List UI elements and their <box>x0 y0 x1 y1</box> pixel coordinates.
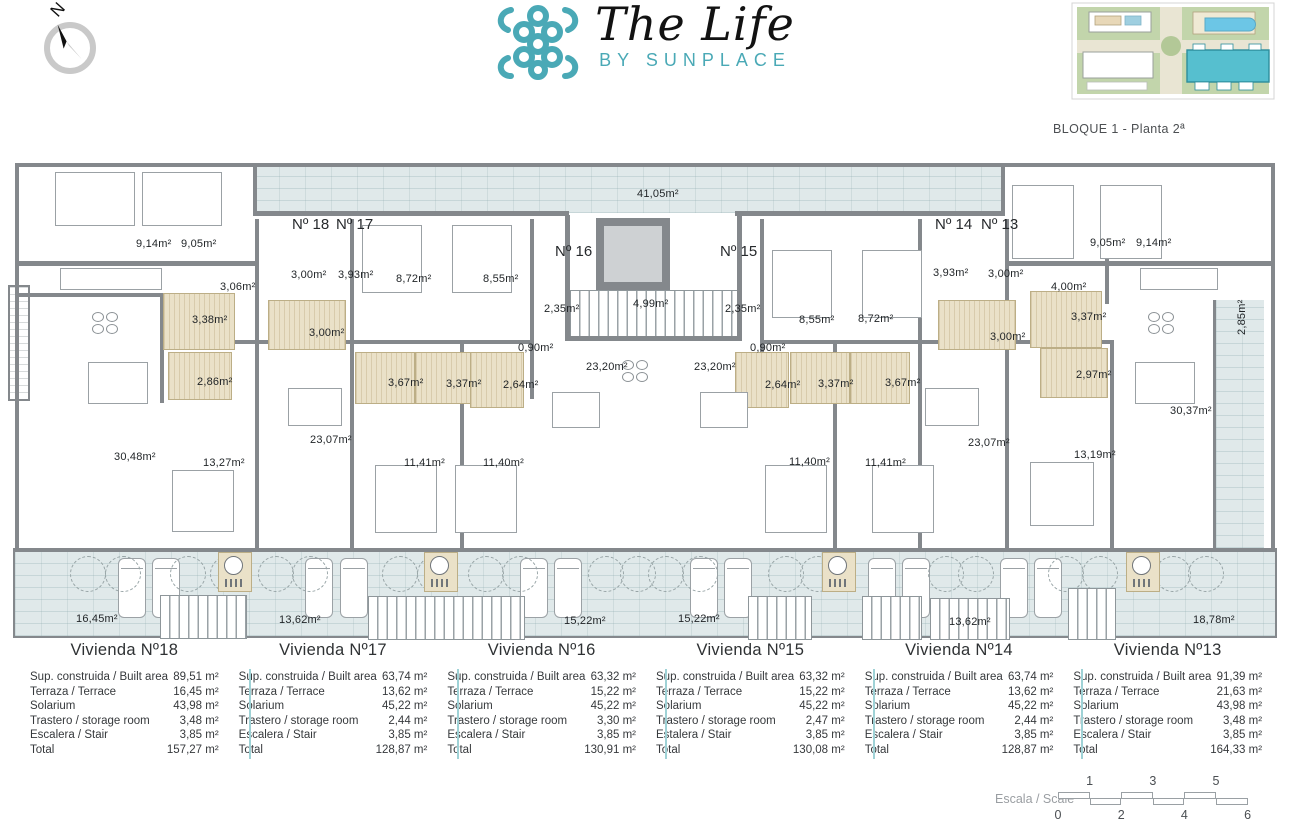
right-balcony <box>1216 300 1264 548</box>
spec-label: Sup. construida / Built area <box>1073 670 1211 685</box>
spec-row: Sup. construida / Built area63,74 m² <box>239 670 428 685</box>
spec-label: Terraza / Terrace <box>656 685 742 700</box>
table-divider <box>249 669 251 759</box>
spec-rows: Sup. construida / Built area91,39 m²Terr… <box>1073 670 1262 758</box>
spec-row: Terraza / Terrace13,62 m² <box>865 685 1054 700</box>
furniture-symbol <box>765 465 827 533</box>
spec-value: 3,48 m² <box>180 714 219 729</box>
spec-label: Solarium <box>656 699 701 714</box>
table-divider <box>665 669 667 759</box>
spec-value: 45,22 m² <box>591 699 636 714</box>
terrace-circle-symbol <box>648 556 684 592</box>
spec-label: Solarium <box>865 699 910 714</box>
spec-label: Escalera / Stair <box>447 728 525 743</box>
terrace-circle-symbol <box>1082 556 1118 592</box>
spec-label: Total <box>30 743 54 758</box>
spec-label: Estalera / Stair <box>656 728 731 743</box>
spec-row: Total130,08 m² <box>656 743 845 758</box>
spec-label: Total <box>865 743 889 758</box>
terrace-circle-symbol <box>105 556 141 592</box>
furniture-symbol <box>375 465 437 533</box>
terrace-circle-symbol <box>70 556 106 592</box>
spec-row: Solarium45,22 m² <box>656 699 845 714</box>
wall <box>255 219 259 548</box>
floorplan-sheet: N The Life BY SUNPLACE <box>0 0 1290 840</box>
spec-label: Escalera / Stair <box>865 728 943 743</box>
spec-value: 43,98 m² <box>1217 699 1262 714</box>
furniture-symbol <box>700 392 748 428</box>
spec-row: Total128,87 m² <box>865 743 1054 758</box>
scale-segment <box>1121 792 1153 799</box>
terrace-circle-symbol <box>588 556 624 592</box>
terrace-circle-symbol <box>502 556 538 592</box>
wall <box>253 166 257 216</box>
wall <box>1005 261 1275 266</box>
siteplan-thumbnail <box>1065 0 1285 106</box>
terrace-staircase <box>1068 588 1116 640</box>
furniture-symbol <box>455 465 517 533</box>
spec-row: Escalera / Stair3,85 m² <box>1073 728 1262 743</box>
scale-tick: 1 <box>1086 774 1093 788</box>
block-floor-caption: BLOQUE 1 - Planta 2ª <box>1053 122 1185 136</box>
spec-value: 2,44 m² <box>1014 714 1053 729</box>
spec-rows: Sup. construida / Built area63,74 m²Terr… <box>239 670 428 758</box>
spec-row: Sup. construida / Built area63,32 m² <box>656 670 845 685</box>
spec-row: Solarium45,22 m² <box>865 699 1054 714</box>
spec-row: Solarium45,22 m² <box>447 699 636 714</box>
scale-tick: 4 <box>1181 808 1188 822</box>
spec-rows: Sup. construida / Built area63,74 m²Terr… <box>865 670 1054 758</box>
spec-label: Sup. construida / Built area <box>447 670 585 685</box>
spec-value: 3,30 m² <box>597 714 636 729</box>
spec-row: Sup. construida / Built area63,32 m² <box>447 670 636 685</box>
terrace-circle-symbol <box>292 556 328 592</box>
apartment-table: Vivienda Nº18Sup. construida / Built are… <box>20 641 229 763</box>
spec-row: Solarium43,98 m² <box>30 699 219 714</box>
spec-row: Sup. construida / Built area89,51 m² <box>30 670 219 685</box>
spec-row: Terraza / Terrace15,22 m² <box>656 685 845 700</box>
terrace-circle-symbol <box>1048 556 1084 592</box>
spec-row: Escalera / Stair3,85 m² <box>447 728 636 743</box>
scale-segment <box>1184 792 1216 799</box>
terrace-circle-symbol <box>1188 556 1224 592</box>
spec-row: Solarium43,98 m² <box>1073 699 1262 714</box>
furniture-symbol <box>772 250 832 318</box>
table-divider <box>1081 669 1083 759</box>
spec-value: 89,51 m² <box>173 670 218 685</box>
spec-value: 2,47 m² <box>806 714 845 729</box>
furniture-symbol <box>60 268 162 290</box>
wall <box>1001 166 1005 216</box>
spec-row: Terraza / Terrace21,63 m² <box>1073 685 1262 700</box>
scale-tick: 0 <box>1055 808 1062 822</box>
apartment-table: Vivienda Nº16Sup. construida / Built are… <box>437 641 646 763</box>
apartment-table: Vivienda Nº13Sup. construida / Built are… <box>1063 641 1272 763</box>
bathroom-area <box>268 300 346 350</box>
spec-label: Terraza / Terrace <box>30 685 116 700</box>
spec-label: Trastero / storage room <box>865 714 985 729</box>
spec-row: Escalera / Stair3,85 m² <box>865 728 1054 743</box>
spec-row: Terraza / Terrace13,62 m² <box>239 685 428 700</box>
spec-label: Solarium <box>30 699 75 714</box>
spec-value: 16,45 m² <box>173 685 218 700</box>
furniture-symbol <box>172 470 234 532</box>
scale-segment <box>1058 792 1090 799</box>
spec-value: 91,39 m² <box>1217 670 1262 685</box>
spec-value: 63,32 m² <box>591 670 636 685</box>
sun-lounger <box>554 558 582 618</box>
logo-ornament-icon <box>495 2 581 82</box>
spec-label: Terraza / Terrace <box>865 685 951 700</box>
spec-label: Sup. construida / Built area <box>656 670 794 685</box>
spec-row: Trastero / storage room3,48 m² <box>30 714 219 729</box>
spec-value: 15,22 m² <box>799 685 844 700</box>
brand-subtitle: BY SUNPLACE <box>599 50 791 71</box>
scale-segment <box>1216 798 1248 805</box>
furniture-symbol <box>142 172 222 226</box>
spec-row: Trastero / storage room3,30 m² <box>447 714 636 729</box>
apartment-table: Vivienda Nº14Sup. construida / Built are… <box>855 641 1064 763</box>
spec-row: Escalera / Stair3,85 m² <box>30 728 219 743</box>
wall <box>15 261 259 266</box>
terrace-staircase <box>748 596 812 640</box>
spec-row: Escalera / Stair3,85 m² <box>239 728 428 743</box>
apartment-title: Vivienda Nº14 <box>865 641 1054 660</box>
spec-label: Sup. construida / Built area <box>30 670 168 685</box>
apartment-title: Vivienda Nº13 <box>1073 641 1262 660</box>
spec-label: Solarium <box>239 699 284 714</box>
spec-value: 3,85 m² <box>806 728 845 743</box>
spec-rows: Sup. construida / Built area63,32 m²Terr… <box>447 670 636 758</box>
terrace-circle-symbol <box>1155 556 1191 592</box>
spec-value: 128,87 m² <box>376 743 428 758</box>
spec-value: 130,08 m² <box>793 743 845 758</box>
spec-value: 63,74 m² <box>1008 670 1053 685</box>
apartment-spec-tables: Vivienda Nº18Sup. construida / Built are… <box>20 641 1272 763</box>
spec-row: Sup. construida / Built area63,74 m² <box>865 670 1054 685</box>
terrace-circle-symbol <box>382 556 418 592</box>
terrace-circle-symbol <box>468 556 504 592</box>
wall <box>1275 548 1277 638</box>
spec-value: 13,62 m² <box>1008 685 1053 700</box>
spec-value: 63,74 m² <box>382 670 427 685</box>
spec-value: 3,85 m² <box>1014 728 1053 743</box>
spec-label: Total <box>656 743 680 758</box>
spec-row: Solarium45,22 m² <box>239 699 428 714</box>
furniture-symbol <box>1135 362 1195 404</box>
furniture-symbol <box>55 172 135 226</box>
spec-value: 2,44 m² <box>388 714 427 729</box>
stove-icon <box>92 312 118 334</box>
spec-value: 45,22 m² <box>799 699 844 714</box>
spec-label: Terraza / Terrace <box>1073 685 1159 700</box>
apartment-title: Vivienda Nº17 <box>239 641 428 660</box>
wall <box>1271 163 1275 552</box>
spec-row: Total130,91 m² <box>447 743 636 758</box>
spec-label: Solarium <box>447 699 492 714</box>
spec-label: Terraza / Terrace <box>447 685 533 700</box>
wall <box>15 163 1275 167</box>
spec-value: 3,85 m² <box>1223 728 1262 743</box>
wall <box>15 163 19 552</box>
sun-lounger <box>340 558 368 618</box>
spec-row: Trastero / storage room3,48 m² <box>1073 714 1262 729</box>
spec-row: Total157,27 m² <box>30 743 219 758</box>
spec-value: 13,62 m² <box>382 685 427 700</box>
furniture-symbol <box>288 388 342 426</box>
wall <box>565 336 742 341</box>
terrace-circle-symbol <box>682 556 718 592</box>
brand-title: The Life <box>595 0 795 48</box>
apartment-title: Vivienda Nº15 <box>656 641 845 660</box>
left-balcony <box>8 285 30 401</box>
table-divider <box>873 669 875 759</box>
terrace-staircase <box>862 596 922 640</box>
wall <box>13 548 15 638</box>
spec-value: 3,85 m² <box>597 728 636 743</box>
spec-row: Total128,87 m² <box>239 743 428 758</box>
north-compass: N <box>36 8 106 78</box>
terrace-circle-symbol <box>768 556 804 592</box>
scale-tick: 5 <box>1213 774 1220 788</box>
spec-value: 45,22 m² <box>382 699 427 714</box>
table-divider <box>457 669 459 759</box>
furniture-symbol <box>1030 462 1094 526</box>
terrace-circle-symbol <box>170 556 206 592</box>
scale-tick: 6 <box>1244 808 1251 822</box>
elevator-cab <box>604 226 662 282</box>
spec-label: Total <box>1073 743 1097 758</box>
furniture-symbol <box>872 465 934 533</box>
wall <box>737 215 742 340</box>
spec-value: 128,87 m² <box>1002 743 1054 758</box>
wall <box>565 215 570 340</box>
terrace-staircase <box>160 595 247 639</box>
spec-value: 15,22 m² <box>591 685 636 700</box>
spec-row: Terraza / Terrace15,22 m² <box>447 685 636 700</box>
furniture-symbol <box>1012 185 1074 259</box>
outdoor-shower <box>218 552 252 592</box>
spec-label: Trastero / storage room <box>656 714 776 729</box>
spec-value: 130,91 m² <box>584 743 636 758</box>
apartment-table: Vivienda Nº17Sup. construida / Built are… <box>229 641 438 763</box>
wall <box>15 548 1275 552</box>
spec-row: Terraza / Terrace16,45 m² <box>30 685 219 700</box>
wall <box>15 293 165 297</box>
spec-label: Trastero / storage room <box>447 714 567 729</box>
spec-row: Trastero / storage room2,44 m² <box>865 714 1054 729</box>
spec-label: Escalera / Stair <box>30 728 108 743</box>
apartment-title: Vivienda Nº16 <box>447 641 636 660</box>
spec-value: 45,22 m² <box>1008 699 1053 714</box>
apartment-title: Vivienda Nº18 <box>30 641 219 660</box>
scale-segment <box>1090 798 1122 805</box>
outdoor-shower <box>424 552 458 592</box>
terrace-circle-symbol <box>258 556 294 592</box>
spec-label: Trastero / storage room <box>1073 714 1193 729</box>
stove-icon <box>1148 312 1174 334</box>
spec-value: 43,98 m² <box>173 699 218 714</box>
furniture-symbol <box>925 388 979 426</box>
spec-value: 157,27 m² <box>167 743 219 758</box>
top-solarium <box>253 166 1005 213</box>
spec-value: 3,85 m² <box>388 728 427 743</box>
outdoor-shower <box>822 552 856 592</box>
spec-value: 21,63 m² <box>1217 685 1262 700</box>
apartment-table: Vivienda Nº15Sup. construida / Built are… <box>646 641 855 763</box>
spec-row: Sup. construida / Built area91,39 m² <box>1073 670 1262 685</box>
furniture-symbol <box>862 250 922 318</box>
terrace-circle-symbol <box>958 556 994 592</box>
wall <box>530 219 534 399</box>
terrace-staircase <box>368 596 525 640</box>
spec-value: 3,85 m² <box>180 728 219 743</box>
spec-row: Estalera / Stair3,85 m² <box>656 728 845 743</box>
scale-tick: 2 <box>1118 808 1125 822</box>
spec-label: Trastero / storage room <box>239 714 359 729</box>
spec-value: 3,48 m² <box>1223 714 1262 729</box>
outdoor-shower <box>1126 552 1160 592</box>
spec-value: 164,33 m² <box>1210 743 1262 758</box>
spec-row: Trastero / storage room2,47 m² <box>656 714 845 729</box>
spec-label: Trastero / storage room <box>30 714 150 729</box>
furniture-symbol <box>552 392 600 428</box>
spec-label: Total <box>447 743 471 758</box>
scale-segment <box>1153 798 1185 805</box>
spec-rows: Sup. construida / Built area63,32 m²Terr… <box>656 670 845 758</box>
spec-row: Total164,33 m² <box>1073 743 1262 758</box>
spec-label: Sup. construida / Built area <box>865 670 1003 685</box>
scale-tick: 3 <box>1149 774 1156 788</box>
spec-label: Escalera / Stair <box>1073 728 1151 743</box>
furniture-symbol <box>88 362 148 404</box>
spec-row: Trastero / storage room2,44 m² <box>239 714 428 729</box>
spec-label: Terraza / Terrace <box>239 685 325 700</box>
spec-label: Sup. construida / Built area <box>239 670 377 685</box>
spec-rows: Sup. construida / Built area89,51 m²Terr… <box>30 670 219 758</box>
wall <box>1213 300 1216 548</box>
furniture-symbol <box>1140 268 1218 290</box>
scale-bar: Escala / Scale 1350246 <box>940 770 1270 830</box>
spec-value: 63,32 m² <box>799 670 844 685</box>
